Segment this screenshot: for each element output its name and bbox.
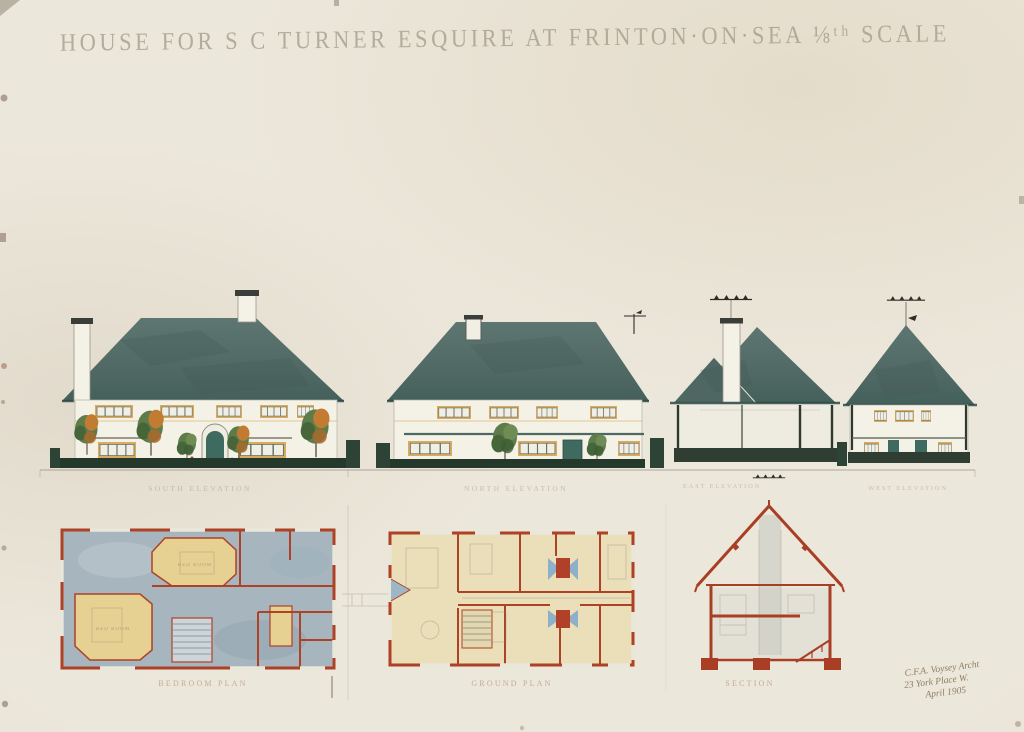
- bird-finial: [887, 296, 925, 300]
- elevation-east-end: [670, 295, 840, 478]
- window: [618, 441, 640, 456]
- window: [95, 405, 133, 418]
- window: [921, 410, 931, 422]
- elevation-caption: EAST ELEVATION: [683, 483, 761, 490]
- room-label: BED ROOM: [178, 563, 212, 568]
- chimney: [464, 315, 483, 340]
- garden-wall: [650, 438, 664, 468]
- garden-wall: [376, 443, 390, 468]
- room-label: BED ROOM: [96, 627, 130, 632]
- window: [895, 410, 914, 422]
- hedge-base: [58, 458, 348, 468]
- cross-section: [695, 500, 844, 670]
- window: [590, 406, 617, 419]
- plan-caption: BEDROOM PLAN: [158, 679, 247, 688]
- window: [489, 406, 519, 419]
- window: [437, 406, 471, 419]
- footing: [753, 658, 770, 670]
- architect-signature: C.F.A. Voysey Archt 23 York Place W. Apr…: [902, 660, 983, 703]
- drawing-sheet: HOUSE FOR S C TURNER ESQUIRE AT FRINTON·…: [0, 0, 1024, 732]
- weathervane: [624, 310, 646, 334]
- garden-wall: [837, 442, 847, 466]
- elevation-north-front: [376, 310, 664, 468]
- plan-caption: GROUND PLAN: [471, 679, 552, 688]
- ground-plan: [342, 533, 633, 665]
- plan-caption: SECTION: [725, 679, 774, 688]
- window: [98, 442, 136, 458]
- window: [536, 406, 558, 419]
- stairs: [172, 618, 212, 662]
- elevation-caption: SOUTH ELEVATION: [148, 484, 252, 493]
- birds-on-wall: [753, 474, 785, 477]
- sheet-title: HOUSE FOR S C TURNER ESQUIRE AT FRINTON·…: [60, 20, 950, 56]
- hedge-base: [388, 459, 645, 468]
- terrace-lines: [342, 594, 390, 606]
- bird-finial: [710, 295, 752, 300]
- garden-wall: [346, 440, 360, 468]
- bedroom-plan: BED ROOM BED ROOM: [62, 530, 334, 668]
- window: [518, 441, 557, 456]
- elevation-west-end: [837, 296, 977, 466]
- chimney: [720, 318, 743, 403]
- window: [160, 405, 194, 418]
- chimney: [71, 318, 93, 402]
- elevation-caption: WEST ELEVATION: [868, 485, 948, 492]
- elevation-south-front: [50, 290, 360, 468]
- stairs: [462, 610, 492, 648]
- chimney: [235, 290, 259, 322]
- footing: [824, 658, 841, 670]
- garden-wall: [50, 448, 60, 468]
- vane-flag: [908, 315, 917, 321]
- window: [260, 405, 288, 418]
- bedroom-room: [152, 538, 236, 586]
- ground-line: [40, 470, 975, 477]
- window: [874, 410, 887, 422]
- plinth: [848, 452, 970, 463]
- window: [216, 405, 242, 418]
- window: [408, 441, 452, 456]
- elevation-caption: NORTH ELEVATION: [464, 484, 568, 493]
- architectural-drawing: HOUSE FOR S C TURNER ESQUIRE AT FRINTON·…: [0, 0, 1024, 732]
- plinth: [674, 448, 837, 462]
- footing: [701, 658, 718, 670]
